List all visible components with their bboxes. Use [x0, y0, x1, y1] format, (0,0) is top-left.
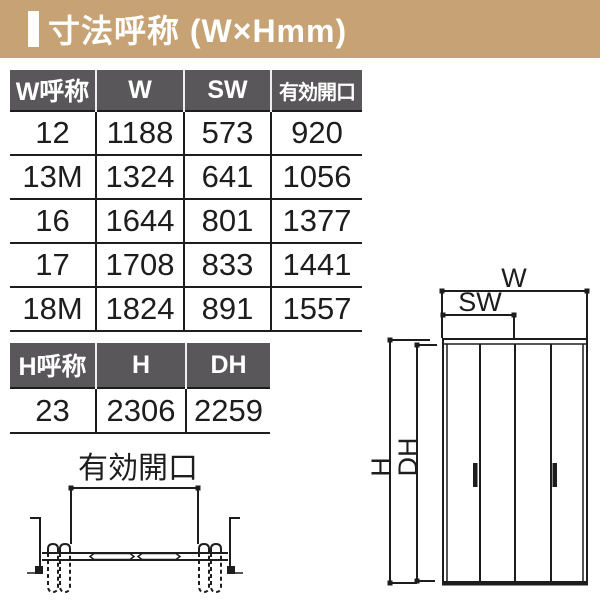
w-dimension-label: W [501, 265, 527, 293]
dh-dimension-label: DH [393, 438, 423, 477]
cell-sw: 891 [184, 287, 271, 331]
title-band: 寸法呼称 (W×Hmm) [0, 0, 600, 58]
cell-sw: 801 [184, 199, 271, 243]
cell-w-name: 12 [10, 111, 96, 155]
folding-door-panels [442, 338, 588, 586]
dh-dimension: DH [393, 343, 437, 584]
height-dimension-table: H呼称 H DH 23 2306 2259 [10, 343, 270, 434]
col-header-w: W [96, 70, 184, 111]
right-jamb [227, 518, 243, 574]
door-elevation-drawing: W SW H [360, 265, 600, 600]
cell-sw: 573 [184, 111, 271, 155]
opening-section-drawing: 有効開口 [10, 440, 260, 600]
width-table-header-row: W呼称 W SW 有効開口 [10, 70, 362, 111]
cell-opening: 1377 [271, 199, 362, 243]
cell-opening: 1441 [271, 243, 362, 287]
table-row: 16 1644 801 1377 [10, 199, 362, 243]
cell-w: 1188 [96, 111, 184, 155]
cell-w: 1824 [96, 287, 184, 331]
width-dimension-table: W呼称 W SW 有効開口 12 1188 573 920 13M 1324 6… [10, 70, 362, 332]
cell-sw: 641 [184, 155, 271, 199]
cell-opening: 1557 [271, 287, 362, 331]
cell-w-name: 13M [10, 155, 96, 199]
table-row: 13M 1324 641 1056 [10, 155, 362, 199]
table-row: 18M 1824 891 1557 [10, 287, 362, 331]
left-jamb [27, 518, 43, 574]
col-header-effective-opening: 有効開口 [271, 70, 362, 111]
title-marker-bar [28, 11, 39, 47]
col-header-w-name: W呼称 [10, 70, 96, 111]
height-table-header-row: H呼称 H DH [10, 343, 270, 388]
effective-opening-dimension [69, 486, 201, 545]
page-title: 寸法呼称 (W×Hmm) [48, 6, 347, 52]
catalog-page: 寸法呼称 (W×Hmm) W呼称 W SW 有効開口 12 1188 573 9… [0, 0, 600, 600]
col-header-h: H [96, 343, 186, 388]
cell-w-name: 16 [10, 199, 96, 243]
effective-opening-label: 有効開口 [78, 452, 198, 485]
cell-opening: 920 [271, 111, 362, 155]
col-header-h-name: H呼称 [10, 343, 96, 388]
folded-panels-left [48, 544, 70, 592]
sw-dimension: SW [441, 287, 517, 338]
cell-dh: 2259 [186, 388, 270, 433]
door-handle-left [473, 463, 478, 487]
cell-sw: 833 [184, 243, 271, 287]
col-header-dh: DH [186, 343, 270, 388]
cell-w: 1708 [96, 243, 184, 287]
cell-w-name: 17 [10, 243, 96, 287]
table-row: 17 1708 833 1441 [10, 243, 362, 287]
h-dimension-label: H [366, 457, 396, 477]
cell-w: 1644 [96, 199, 184, 243]
cell-w: 1324 [96, 155, 184, 199]
cell-h: 2306 [96, 388, 186, 433]
door-handle-right [553, 463, 558, 487]
cell-h-name: 23 [10, 388, 96, 433]
folded-panels-right [199, 544, 221, 592]
cell-w-name: 18M [10, 287, 96, 331]
col-header-sw: SW [184, 70, 271, 111]
table-row: 12 1188 573 920 [10, 111, 362, 155]
cell-opening: 1056 [271, 155, 362, 199]
sw-dimension-label: SW [458, 287, 502, 317]
table-row: 23 2306 2259 [10, 388, 270, 433]
